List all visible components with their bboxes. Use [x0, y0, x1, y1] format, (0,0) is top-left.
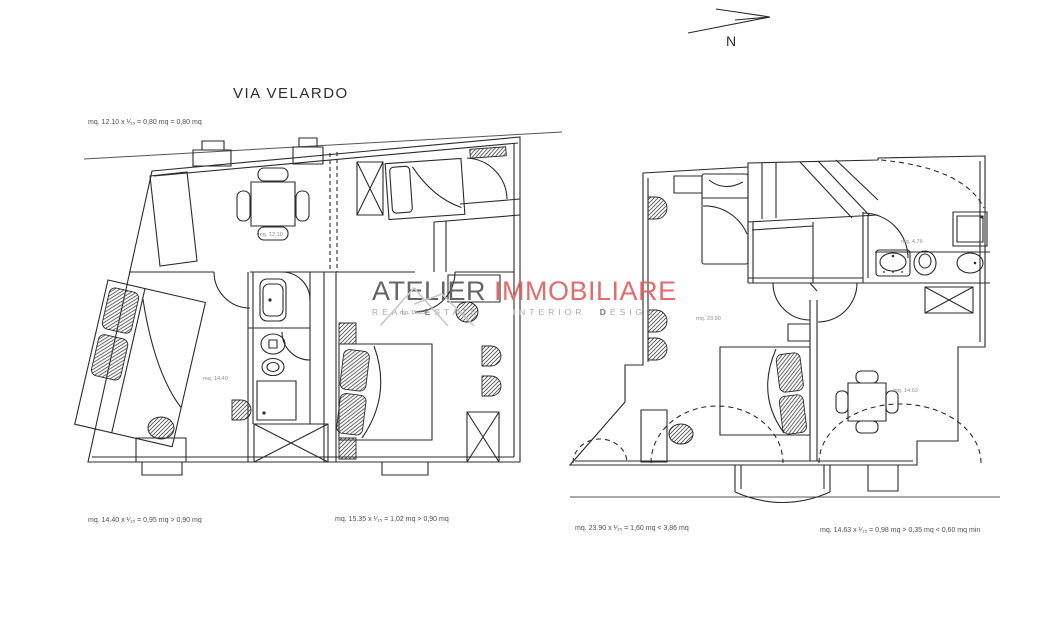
north-label: N	[726, 33, 736, 49]
pillow-icon	[776, 352, 804, 393]
floor-plan-sheet: VIA VELARDO N mq. 12.10 x ¹⁄₁₅ = 0,80 mq…	[0, 0, 1064, 623]
balcony-step	[142, 462, 182, 475]
desk-icon	[448, 275, 500, 302]
floor-plan-right: mq. 4.76 mq. 23.90	[570, 156, 1000, 503]
radiator-icon	[648, 197, 667, 219]
bidet-icon	[957, 253, 983, 273]
annotation-ratio-bottom-left-1: mq. 14.40 x ¹⁄₁₅ = 0,95 mq > 0,90 mq	[88, 517, 202, 524]
radiator-icon	[648, 338, 667, 360]
shaft-box-left-plan	[254, 424, 328, 462]
bed-icon	[702, 174, 748, 264]
balcony-step	[382, 462, 428, 475]
bathroom-right-plan	[876, 212, 987, 276]
street-label: VIA VELARDO	[233, 85, 349, 102]
bedroom-top-right-left-plan	[357, 147, 506, 220]
dashed-arcs	[573, 160, 984, 463]
room-label-4-76: mq. 4.76	[901, 239, 923, 245]
bedroom-2-left-plan	[334, 275, 501, 475]
pillow-icon	[779, 394, 807, 435]
pillow-icon	[339, 349, 370, 392]
radiator-icon	[232, 400, 251, 420]
pillow-icon	[336, 393, 367, 436]
wardrobe-left	[150, 172, 197, 266]
balcony-right-plan	[570, 465, 1000, 503]
living-room-right-plan	[641, 310, 810, 462]
stairwell	[748, 160, 878, 283]
bidet-icon	[261, 334, 285, 354]
annotation-ratio-top-left: mq. 12.10 x ¹⁄₁₅ = 0,80 mq = 0,80 mq	[88, 119, 202, 126]
annotation-ratio-bottom-left-2: mq. 15.35 x ¹⁄₁₅ = 1,02 mq > 0,90 mq	[335, 516, 449, 523]
desk-icon	[136, 438, 186, 462]
dining-table-right	[836, 371, 898, 433]
bedroom-1-left-plan	[75, 280, 206, 475]
floor-plan-left: mq. 12.10	[75, 132, 562, 475]
room-label-15-35: mq. 15.35	[400, 310, 425, 316]
room-label-14-40: mq. 14.40	[203, 376, 228, 382]
room-label-14-63: mq. 14.63	[893, 388, 918, 394]
radiator-icon	[470, 147, 507, 158]
bedroom-top-right-plan	[648, 174, 748, 264]
floor-plan-drawing: VIA VELARDO N mq. 12.10 x ¹⁄₁₅ = 0,80 mq…	[0, 0, 1064, 623]
pillow-icon	[90, 334, 129, 382]
radiator-icon	[339, 438, 356, 459]
chair-icon	[456, 302, 478, 322]
north-arrow: N	[688, 9, 770, 49]
annotation-ratio-bottom-right-2: mq. 14.63 x ¹⁄₁₅ = 0,98 mq > 0,35 mq < 0…	[820, 527, 980, 534]
balcony-step	[868, 465, 898, 491]
radiator-icon	[339, 323, 356, 344]
bathtub-icon	[260, 279, 286, 321]
radiator-icon	[482, 376, 501, 396]
radiator-icon	[648, 310, 667, 332]
dining-table-left	[237, 168, 309, 240]
right-plan-outer-walls	[570, 156, 985, 465]
bathroom-left-plan	[232, 279, 296, 420]
pillow-icon	[101, 287, 140, 335]
wardrobe-icon	[674, 176, 702, 193]
room-label-12-10: mq. 12.10	[258, 232, 283, 238]
toilet-icon	[914, 251, 936, 275]
shower-icon	[257, 381, 296, 420]
room-label-23-90: mq. 23.90	[696, 316, 721, 322]
left-plan-outer-walls	[88, 137, 520, 462]
chair-icon	[148, 417, 174, 439]
radiator-icon	[482, 346, 501, 366]
nightstand-icon	[788, 324, 810, 341]
chair-icon	[669, 424, 693, 444]
desk-icon	[641, 410, 667, 462]
toilet-icon	[262, 359, 284, 376]
annotation-ratio-bottom-right-1: mq. 23.90 x ¹⁄₁₅ = 1,60 mq < 3,86 mq	[575, 525, 689, 532]
shaft-box-right-plan	[925, 287, 973, 313]
